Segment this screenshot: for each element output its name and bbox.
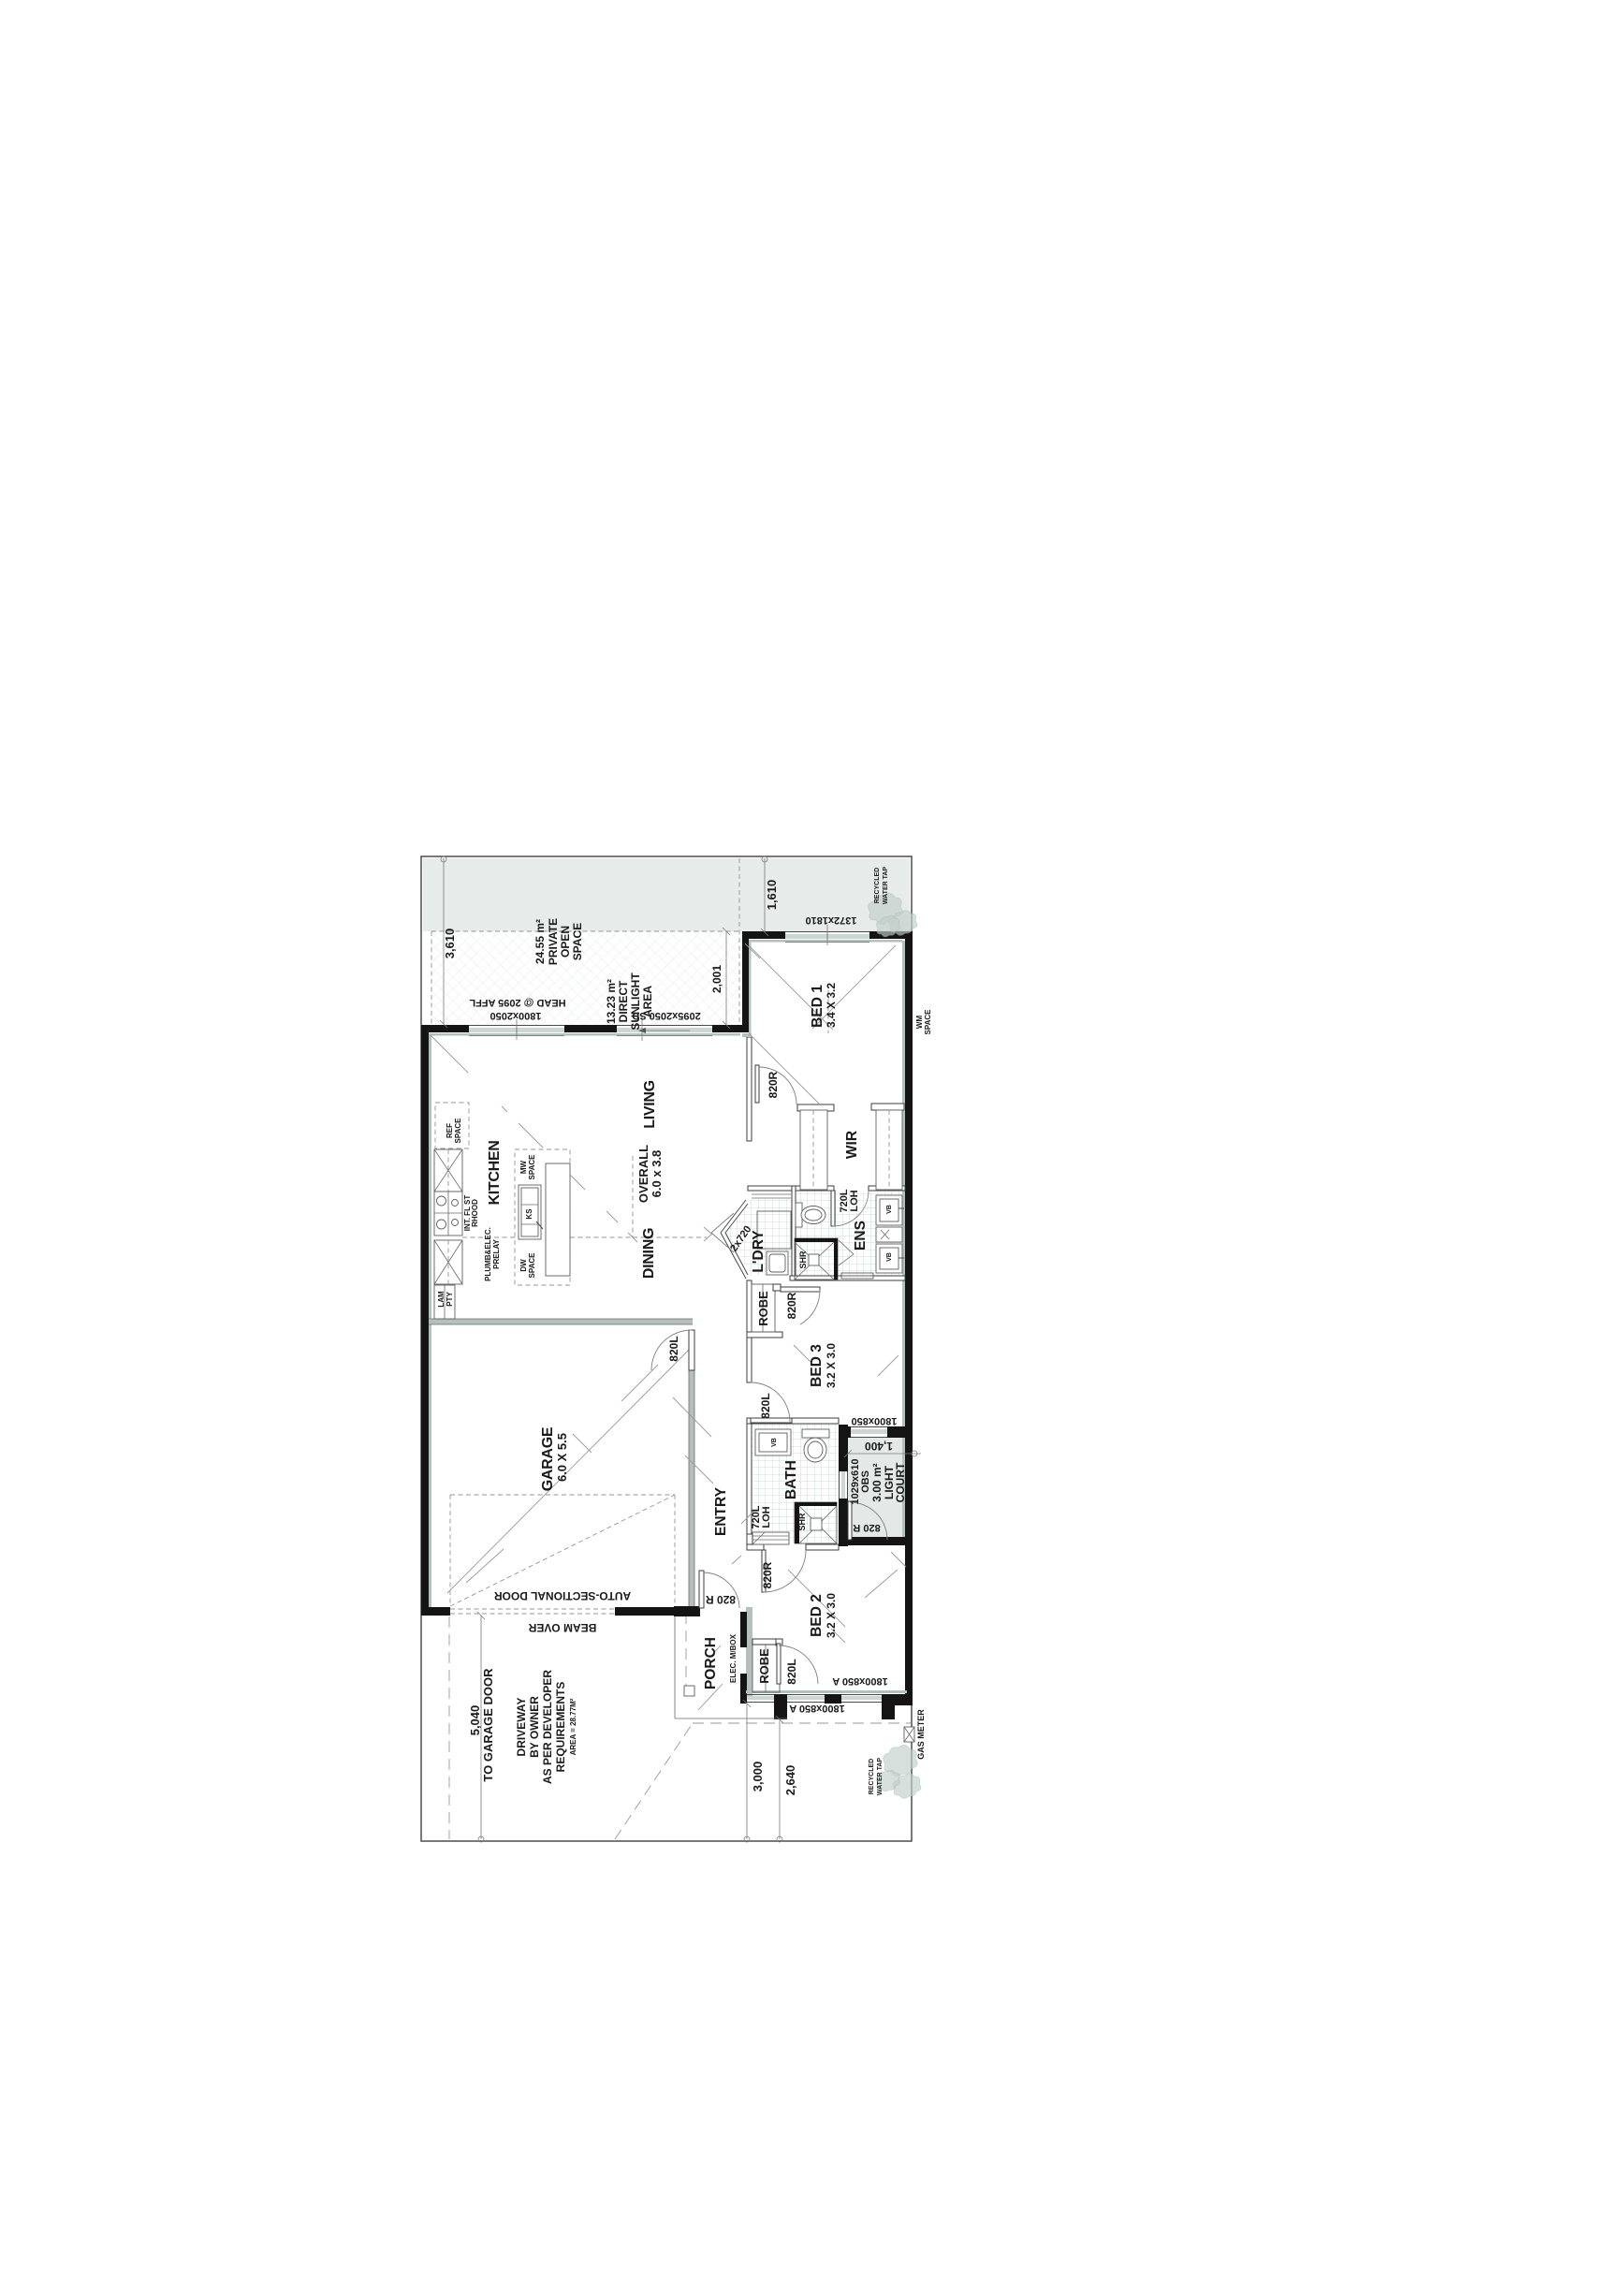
svg-text:ROBE: ROBE [757, 1648, 771, 1684]
svg-text:VB: VB [886, 1252, 893, 1262]
svg-text:PORCH: PORCH [703, 1637, 719, 1689]
svg-text:3.2 X 3.0: 3.2 X 3.0 [825, 1593, 838, 1638]
svg-text:TO GARAGE DOOR: TO GARAGE DOOR [481, 1668, 495, 1782]
svg-text:DINING: DINING [641, 1228, 657, 1279]
svg-text:REQUIREMENTS: REQUIREMENTS [554, 1682, 567, 1773]
svg-text:ENS: ENS [853, 1221, 869, 1250]
svg-text:OVERALL: OVERALL [636, 1145, 650, 1203]
svg-text:WM: WM [915, 1016, 924, 1030]
svg-text:24.55 m²: 24.55 m² [533, 919, 547, 964]
svg-text:PRELAY: PRELAY [492, 1238, 501, 1268]
svg-text:AS PER DEVELOPER: AS PER DEVELOPER [541, 1670, 554, 1784]
svg-text:1800x850 A: 1800x850 A [789, 1703, 845, 1714]
svg-text:5,040: 5,040 [468, 1705, 482, 1736]
svg-text:BATH: BATH [783, 1460, 799, 1499]
svg-text:MW: MW [519, 1160, 528, 1174]
svg-text:KS: KS [525, 1208, 533, 1220]
svg-text:SPACE: SPACE [924, 1009, 932, 1035]
svg-text:WIR: WIR [844, 1131, 860, 1159]
svg-text:2,640: 2,640 [783, 1765, 797, 1796]
svg-text:LOH: LOH [761, 1506, 772, 1528]
svg-text:1800x850 A: 1800x850 A [832, 1675, 888, 1687]
svg-text:3.00 m²: 3.00 m² [870, 1463, 884, 1501]
svg-text:13.23 m²: 13.23 m² [605, 979, 618, 1024]
svg-text:820L: 820L [785, 1659, 798, 1684]
svg-text:BY OWNER: BY OWNER [528, 1696, 541, 1758]
svg-text:3.4 X 3.2: 3.4 X 3.2 [825, 983, 838, 1028]
svg-text:OPEN: OPEN [559, 926, 572, 958]
svg-text:RECYCLED: RECYCLED [874, 868, 881, 904]
svg-text:DIRECT: DIRECT [617, 980, 630, 1022]
svg-text:BED 3: BED 3 [809, 1344, 825, 1387]
svg-text:3,610: 3,610 [443, 929, 457, 959]
svg-text:820R: 820R [761, 1561, 774, 1588]
svg-text:820 R: 820 R [853, 1522, 880, 1533]
svg-text:3,000: 3,000 [751, 1762, 765, 1792]
svg-text:DW: DW [519, 1259, 528, 1272]
svg-text:DRIVEWAY: DRIVEWAY [515, 1698, 528, 1757]
svg-text:PTY: PTY [446, 1292, 454, 1307]
svg-text:1800x2050: 1800x2050 [489, 1010, 541, 1021]
svg-text:VB: VB [886, 1205, 893, 1214]
svg-text:ENTRY: ENTRY [713, 1486, 729, 1536]
svg-text:3.2 X 3.0: 3.2 X 3.0 [825, 1343, 838, 1388]
svg-text:BED 1: BED 1 [810, 985, 825, 1028]
svg-text:SPACE: SPACE [571, 923, 584, 960]
svg-text:GAS METER: GAS METER [916, 1709, 926, 1760]
svg-text:BED 2: BED 2 [809, 1594, 825, 1637]
svg-text:820L: 820L [759, 1393, 772, 1418]
svg-text:ROBE: ROBE [756, 1291, 770, 1326]
svg-text:LOH: LOH [849, 1190, 860, 1211]
svg-text:820 R: 820 R [706, 1593, 736, 1606]
svg-text:COURT: COURT [894, 1462, 907, 1502]
svg-text:RECYCLED: RECYCLED [869, 1759, 875, 1795]
svg-text:1800x850: 1800x850 [852, 1415, 898, 1426]
svg-text:ELEC. M/BOX: ELEC. M/BOX [729, 1633, 738, 1683]
svg-text:SHR: SHR [798, 1250, 808, 1269]
svg-text:1372x1810: 1372x1810 [805, 914, 856, 926]
svg-text:2095x2050 SD: 2095x2050 SD [632, 1010, 700, 1021]
svg-text:HEAD @ 2095 AFFL: HEAD @ 2095 AFFL [469, 997, 566, 1008]
svg-text:WATER TAP: WATER TAP [877, 1758, 884, 1796]
svg-text:1,610: 1,610 [765, 880, 779, 911]
svg-text:BEAM OVER: BEAM OVER [528, 1621, 596, 1634]
svg-text:LAM: LAM [437, 1291, 446, 1308]
svg-text:820R: 820R [785, 1292, 798, 1319]
svg-text:6.0 X 5.5: 6.0 X 5.5 [555, 1433, 569, 1482]
svg-text:KITCHEN: KITCHEN [487, 1140, 503, 1205]
svg-text:AREA = 28.77M²: AREA = 28.77M² [569, 1698, 577, 1755]
svg-text:L'DRY: L'DRY [751, 1230, 767, 1273]
svg-text:WATER TAP: WATER TAP [883, 867, 889, 905]
svg-text:820L: 820L [667, 1336, 680, 1361]
svg-text:REF: REF [446, 1123, 454, 1138]
svg-text:PRIVATE: PRIVATE [547, 918, 560, 965]
svg-text:SHR: SHR [797, 1513, 807, 1531]
svg-text:RHOOD: RHOOD [471, 1199, 479, 1227]
svg-text:PLUMB&ELEC.: PLUMB&ELEC. [484, 1227, 492, 1281]
svg-text:SPACE: SPACE [454, 1118, 462, 1144]
svg-text:VB: VB [771, 1438, 778, 1447]
svg-text:GARAGE: GARAGE [540, 1426, 556, 1491]
svg-text:LIVING: LIVING [642, 1080, 658, 1129]
svg-text:SPACE: SPACE [528, 1252, 536, 1279]
svg-text:SPACE: SPACE [528, 1154, 536, 1180]
svg-text:6.0 x 3.8: 6.0 x 3.8 [650, 1150, 664, 1198]
svg-text:1,400: 1,400 [865, 1440, 893, 1453]
svg-text:820R: 820R [767, 1071, 780, 1098]
svg-text:AUTO-SECTIONAL DOOR: AUTO-SECTIONAL DOOR [494, 1589, 632, 1602]
svg-text:2,001: 2,001 [710, 965, 723, 993]
